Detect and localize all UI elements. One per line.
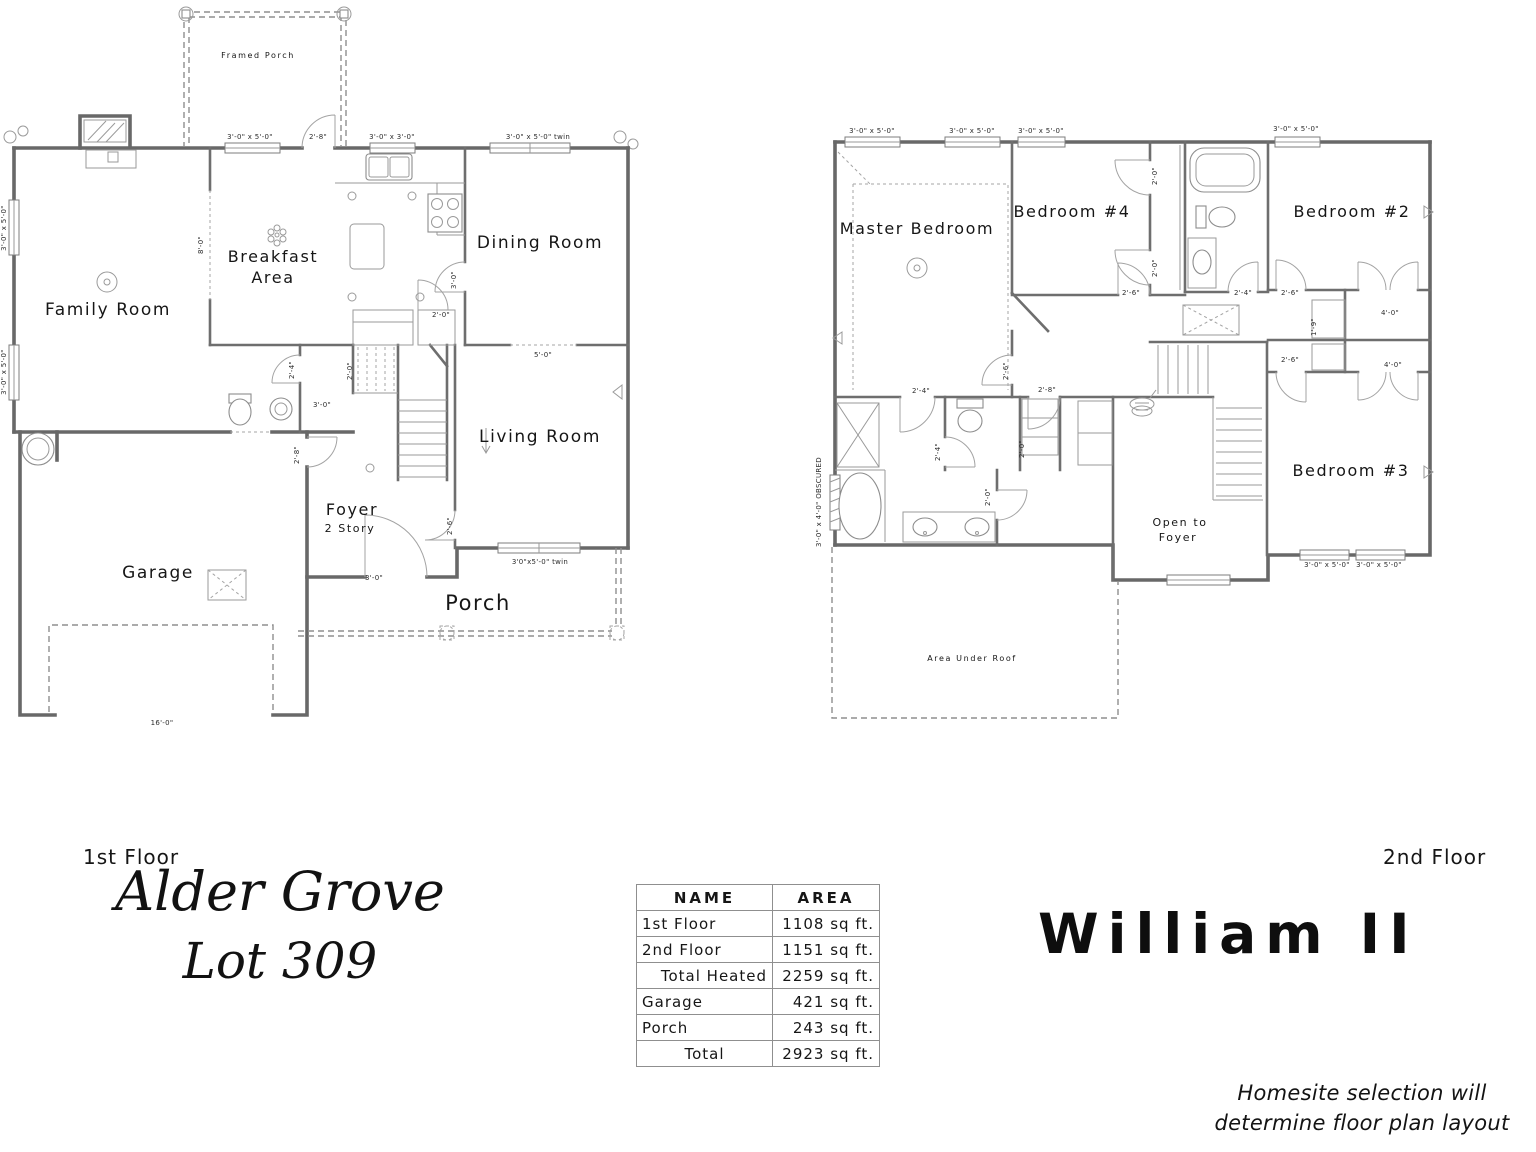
row-area: 2923 sq ft. (773, 1041, 880, 1067)
kitchen-fixtures (335, 154, 465, 301)
table-row: Garage 421 sq ft. (637, 989, 880, 1015)
dimension-label: 3'-0" x 3'-0" (369, 133, 415, 141)
second-floor-plan: Master Bedroom Bedroom #4 Bedroom #2 Bed… (815, 125, 1433, 718)
dimension-label: 3'-0" x 5'-0" (0, 205, 8, 251)
dimension-label: 2'-0" (1018, 440, 1026, 458)
room-label-foyer: Foyer (326, 500, 378, 519)
dimension-label: 2'-6" (446, 517, 454, 535)
sink (1193, 250, 1211, 274)
toilet (958, 410, 982, 432)
tray-ceiling (838, 152, 1008, 390)
light (366, 464, 374, 472)
row-area: 243 sq ft. (773, 1015, 880, 1041)
toilet-tank (1196, 206, 1206, 228)
dimension-label: 2'-6" (1281, 289, 1299, 297)
dimension-label: 3'-0" x 5'-0" (1304, 561, 1350, 569)
sink (913, 518, 937, 536)
dimension-label: 2'-4" (934, 443, 942, 461)
room-label-open-foyer: Open to (1152, 516, 1207, 529)
framed-porch-outline (184, 12, 346, 146)
windows (9, 143, 580, 553)
staircase (353, 345, 490, 477)
dimension-label: 3'-0" x 5'-0" (849, 127, 895, 135)
plan-name: William II (1038, 902, 1419, 966)
powder-room-fixtures (229, 394, 292, 425)
dimension-label: 2'-4" (1234, 289, 1252, 297)
row-name: Total Heated (637, 963, 773, 989)
room-label-family: Family Room (45, 300, 171, 320)
first-floor-plan: Family Room Breakfast Area Dining Room L… (0, 7, 638, 727)
pantry (353, 310, 413, 345)
ceiling-fan (907, 258, 927, 278)
dimension-label: 2'-0" (1151, 167, 1159, 185)
door-marker (613, 385, 622, 399)
dimension-label: 4'-0" (1384, 361, 1402, 369)
room-label-framed-porch: Framed Porch (221, 51, 295, 60)
table-row: 1st Floor 1108 sq ft. (637, 911, 880, 937)
room-label-breakfast: Breakfast (228, 247, 319, 266)
toilet (229, 399, 251, 425)
second-floor-label: 2nd Floor (1383, 845, 1486, 869)
dimension-label: 3'-0" x 4'-0" OBSCURED (815, 457, 823, 547)
room-label-bed4: Bedroom #4 (1013, 202, 1130, 221)
dimension-label: 3'-0" (313, 401, 331, 409)
row-name: 2nd Floor (637, 937, 773, 963)
dimension-label: 2'-4" (912, 387, 930, 395)
room-label-area-under-roof: Area Under Roof (927, 654, 1017, 663)
kitchen-island (350, 224, 384, 269)
dimension-label: 2'-0" (346, 362, 354, 380)
toilet (1209, 207, 1235, 227)
chandelier (268, 225, 286, 246)
lot-number: Lot 309 (95, 932, 465, 990)
dimension-label: 8'-0" (197, 236, 205, 254)
dimension-label: 3'-0" (365, 574, 383, 582)
staircase (1158, 345, 1263, 500)
dimension-label: 3'-0" x 5'-0" (0, 349, 8, 395)
room-label-foyer-sub: 2 Story (325, 522, 376, 535)
dimension-label: 2'-6" (1002, 362, 1010, 380)
sink (965, 518, 989, 536)
row-area: 1151 sq ft. (773, 937, 880, 963)
dimension-label: 2'-8" (293, 446, 301, 464)
toilet-tank (957, 399, 983, 408)
dimension-label: 3'0"x5'-0" twin (512, 558, 568, 566)
hall-bath-fixtures (1188, 148, 1260, 288)
dimension-label: 3'-0" x 5'-0" (227, 133, 273, 141)
disclaimer: Homesite selection will determine floor … (1186, 1078, 1536, 1139)
dimension-label: 2'-0" (1151, 259, 1159, 277)
row-name: Total (637, 1041, 773, 1067)
room-label-living: Living Room (479, 427, 601, 447)
dimension-label: 5'-0" (534, 351, 552, 359)
table-row: Total Heated 2259 sq ft. (637, 963, 880, 989)
dimension-label: 2'-6" (1281, 356, 1299, 364)
row-name: Garage (637, 989, 773, 1015)
dimension-label: 2'-8" (1038, 386, 1056, 394)
dimension-label: 3'-0" x 5'-0" (949, 127, 995, 135)
dimension-label: 3'-0" x 5'-0" (1273, 125, 1319, 133)
disclaimer-line-2: determine floor plan layout (1186, 1108, 1536, 1138)
row-area: 1108 sq ft. (773, 911, 880, 937)
row-area: 2259 sq ft. (773, 963, 880, 989)
dimension-label: 2'-0" (432, 311, 450, 319)
bathtub (1190, 148, 1260, 192)
kitchen-sink (366, 154, 412, 180)
table-row: Total 2923 sq ft. (637, 1041, 880, 1067)
second-floor-dimensions: 3'-0" x 5'-0"3'-0" x 5'-0"3'-0" x 5'-0"3… (815, 125, 1402, 569)
row-name: Porch (637, 1015, 773, 1041)
ceiling-fan (97, 272, 117, 292)
corner-bubble (4, 131, 16, 143)
disclaimer-line-1: Homesite selection will (1186, 1078, 1536, 1108)
room-label-master: Master Bedroom (840, 219, 995, 238)
dimension-label: 4'-0" (1381, 309, 1399, 317)
room-label-bed2: Bedroom #2 (1293, 202, 1410, 221)
dimension-label: 3'-0" x 5'-0" (1018, 127, 1064, 135)
room-label-open-foyer-2: Foyer (1159, 531, 1197, 544)
dimension-label: 2'-8" (309, 133, 327, 141)
dimension-label: 3'-0" x 5'-0" twin (506, 133, 570, 141)
dimension-label: 2'-6" (1122, 289, 1140, 297)
dimension-label: 3'-0" (450, 271, 458, 289)
dimension-label: 2'-4" (288, 361, 296, 379)
room-label-dining: Dining Room (477, 233, 603, 253)
room-label-garage: Garage (122, 563, 194, 583)
area-table: NAME AREA 1st Floor 1108 sq ft. 2nd Floo… (636, 884, 880, 1067)
dimension-label: 3'-0" x 5'-0" (1356, 561, 1402, 569)
community-name: Alder Grove (95, 860, 465, 923)
table-row: 2nd Floor 1151 sq ft. (637, 937, 880, 963)
table-header-area: AREA (773, 885, 880, 911)
callout-icon (1130, 390, 1156, 416)
master-bath-fixtures (835, 399, 1112, 542)
row-area: 421 sq ft. (773, 989, 880, 1015)
garage-door (49, 625, 273, 712)
room-label-bed3: Bedroom #3 (1292, 461, 1409, 480)
dimension-label: 16'-0" (151, 719, 174, 727)
sink (270, 398, 292, 420)
room-label-breakfast-2: Area (251, 268, 294, 287)
garden-tub (839, 473, 881, 539)
dimension-label: 1'-9" (1310, 318, 1318, 336)
attic-access (1183, 305, 1239, 335)
dimension-label: 2'-0" (984, 488, 992, 506)
row-name: 1st Floor (637, 911, 773, 937)
table-header-name: NAME (637, 885, 773, 911)
area-under-roof-outline (832, 547, 1118, 718)
room-label-porch: Porch (445, 591, 511, 615)
table-row: Porch 243 sq ft. (637, 1015, 880, 1041)
attic-access (208, 570, 246, 600)
